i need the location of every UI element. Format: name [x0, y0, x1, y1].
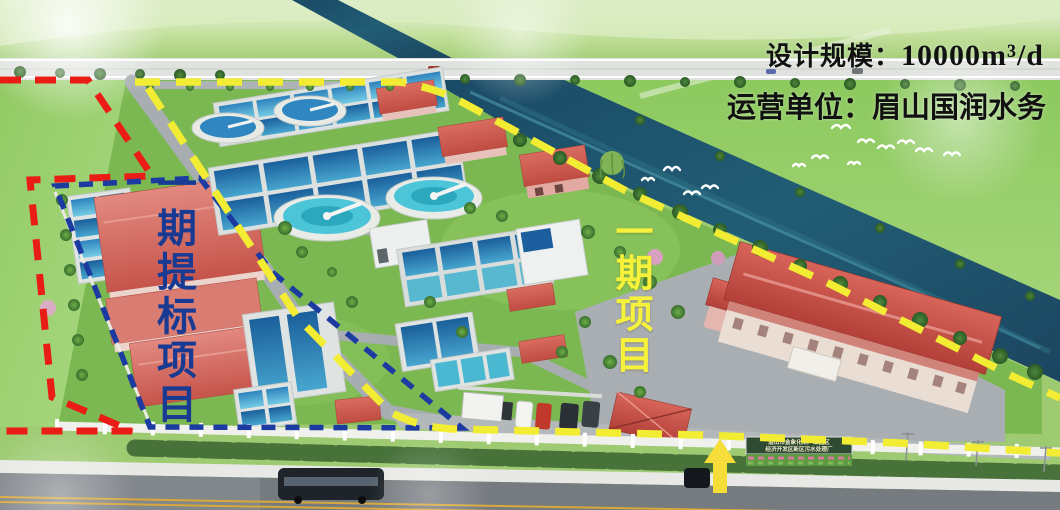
blossom-tree — [711, 251, 725, 265]
phase1-label: 一期项目 — [611, 212, 649, 376]
design-scale-text: 设计规模：10000m³/d — [766, 36, 1044, 73]
gate-sign-text-2: 经济开发区新区污水处理厂 — [765, 445, 833, 453]
aerial-rendering: 眉山市金象化工产业园区 经济开发区新区污水处理厂 — [0, 0, 1060, 510]
bus — [278, 468, 384, 504]
operator-text: 运营单位：眉山国润水务 — [727, 84, 1046, 126]
gate-sign: 眉山市金象化工产业园区 经济开发区新区污水处理厂 — [746, 437, 852, 466]
phase1-upgrade-label: 一期提标项目 — [153, 163, 193, 427]
car-at-gate — [684, 468, 710, 488]
large-clarifier — [274, 195, 380, 241]
small-clarifier — [192, 113, 264, 143]
small-clarifier — [274, 96, 346, 126]
